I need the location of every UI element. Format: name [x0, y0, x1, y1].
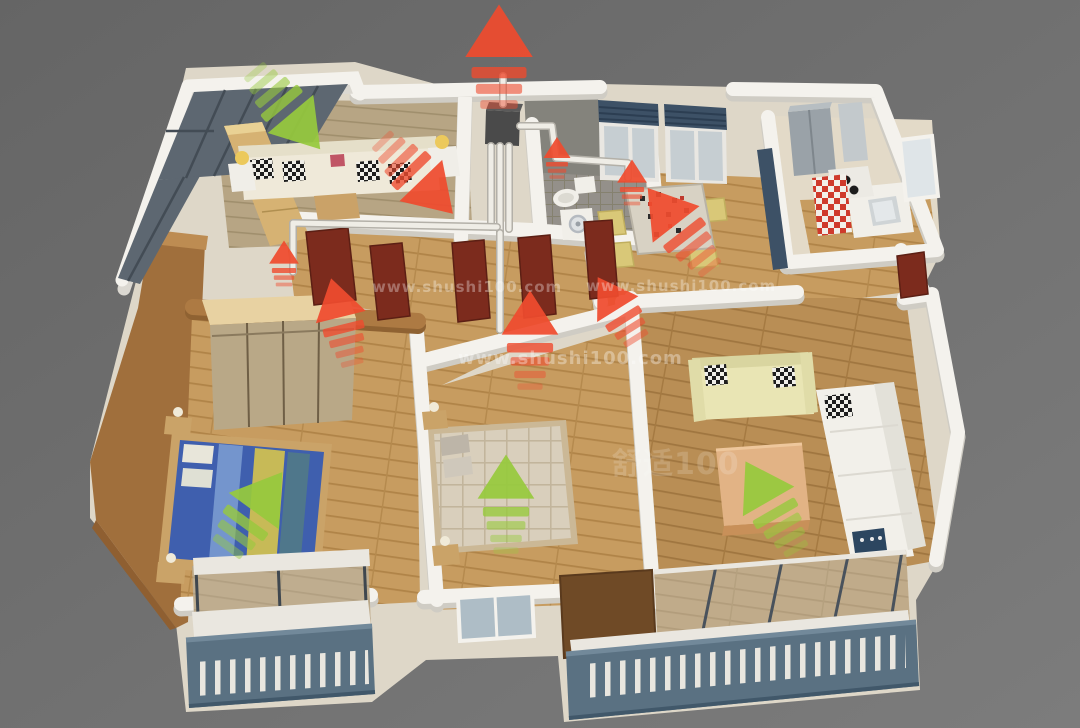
pillow-checkered	[282, 160, 306, 182]
table-lamp	[173, 407, 183, 417]
side-table	[314, 193, 360, 221]
watermark-logo: 舒适100	[612, 447, 740, 482]
end-table	[228, 162, 256, 192]
door-entry	[897, 252, 928, 298]
vent-unit-box	[485, 110, 520, 146]
fresh-arrow-dash	[483, 507, 529, 516]
nightstand	[422, 410, 448, 430]
table-lamp	[429, 402, 439, 412]
table-lamp	[235, 151, 249, 165]
exhaust-arrow-dash	[276, 283, 293, 287]
fresh-arrow-dash	[490, 535, 522, 542]
exhaust-arrow-dash	[480, 100, 518, 109]
nightstand	[164, 416, 192, 436]
pillow-checkered	[356, 160, 380, 182]
pillow-checkered	[824, 393, 853, 419]
nightstand	[432, 544, 460, 566]
ventilation-diagram-canvas: www.shushi100.comwww.shushi100.comwww.sh…	[0, 0, 1080, 728]
bed-pillow	[182, 444, 214, 464]
exhaust-arrow-dash	[272, 268, 296, 273]
fresh-arrow-dash	[493, 547, 518, 553]
nightstand	[156, 562, 186, 584]
watermark-url-3: www.shushi100.com	[458, 348, 683, 369]
table-lamp	[435, 135, 449, 149]
bedroom2-front-window	[458, 593, 534, 641]
checker-backsplash	[812, 174, 852, 236]
exhaust-arrow-dash	[624, 202, 641, 206]
exhaust-arrow-dash	[274, 275, 294, 279]
bed-pillow	[181, 468, 213, 488]
exhaust-arrow-dash	[546, 162, 568, 167]
watermark-url-1: www.shushi100.com	[372, 278, 562, 296]
pillow-checkered	[772, 366, 796, 388]
table-lamp	[166, 553, 176, 563]
kitchen-window	[900, 136, 938, 200]
pillow-checkered	[704, 364, 728, 386]
exhaust-arrow-dash	[548, 169, 567, 173]
exhaust-arrow-dash	[622, 194, 642, 198]
watermark-url-2: www.shushi100.com	[586, 277, 776, 295]
pillow-red	[330, 154, 345, 167]
exhaust-arrow-dash	[550, 175, 565, 179]
pillow-navy	[852, 528, 887, 553]
exhaust-arrow-dash	[476, 84, 522, 94]
fresh-arrow-dash	[487, 521, 526, 529]
floorplan-3d-render: www.shushi100.comwww.shushi100.comwww.sh…	[0, 0, 1080, 728]
exhaust-arrow-dash	[472, 67, 527, 78]
exhaust-arrow-dash	[620, 187, 644, 192]
exhaust-arrow-dash	[514, 371, 546, 378]
exhaust-arrow-dash	[517, 383, 542, 389]
left-balcony	[186, 549, 375, 708]
toilet-tank	[574, 176, 596, 194]
table-lamp	[440, 536, 450, 546]
